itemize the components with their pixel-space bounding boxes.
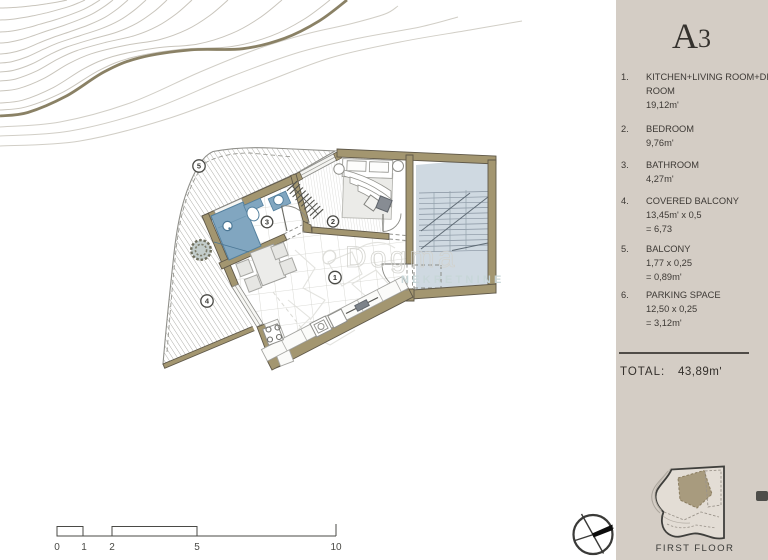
svg-text:43,89mʹ: 43,89mʹ [678, 366, 722, 378]
svg-text:BEDROOM: BEDROOM [646, 124, 694, 134]
svg-text:FIRST FLOOR: FIRST FLOOR [656, 543, 735, 554]
svg-text:BATHROOM: BATHROOM [646, 160, 699, 170]
svg-text:PARKING SPACE: PARKING SPACE [646, 290, 721, 300]
svg-text:4.: 4. [621, 196, 629, 206]
svg-text:0: 0 [54, 542, 60, 553]
svg-text:1: 1 [81, 542, 87, 553]
svg-text:2: 2 [109, 542, 115, 553]
svg-text:5: 5 [194, 542, 200, 553]
svg-text:13,45mʹ x 0,5: 13,45mʹ x 0,5 [646, 210, 702, 220]
svg-text:3.: 3. [621, 160, 629, 170]
svg-text:5: 5 [197, 162, 201, 171]
svg-text:9,76mʹ: 9,76mʹ [646, 138, 674, 148]
svg-text:ROOM: ROOM [646, 86, 675, 96]
svg-text:A: A [672, 16, 698, 56]
svg-text:2.: 2. [621, 124, 629, 134]
svg-text:10: 10 [330, 542, 342, 553]
svg-text:COVERED BALCONY: COVERED BALCONY [646, 196, 739, 206]
svg-text:= 0,89mʹ: = 0,89mʹ [646, 272, 682, 282]
svg-text:3: 3 [265, 218, 269, 227]
svg-text:= 6,73: = 6,73 [646, 224, 672, 234]
svg-text:1.: 1. [621, 72, 629, 82]
svg-text:12,50 x 0,25: 12,50 x 0,25 [646, 304, 697, 314]
svg-text:19,12mʹ: 19,12mʹ [646, 100, 679, 110]
svg-text:Dogma: Dogma [345, 241, 458, 274]
svg-text:1: 1 [333, 273, 337, 282]
svg-text:NEKRETNINE: NEKRETNINE [401, 274, 505, 286]
svg-text:3: 3 [698, 24, 711, 53]
svg-text:6.: 6. [621, 290, 629, 300]
svg-text:KITCHEN+LIVING ROOM+DINING: KITCHEN+LIVING ROOM+DINING [646, 72, 768, 82]
svg-text:1,77 x 0,25: 1,77 x 0,25 [646, 258, 692, 268]
svg-text:TOTAL:: TOTAL: [620, 366, 665, 378]
svg-text:4,27mʹ: 4,27mʹ [646, 174, 674, 184]
svg-text:5.: 5. [621, 244, 629, 254]
svg-text:= 3,12mʹ: = 3,12mʹ [646, 318, 682, 328]
svg-text:2: 2 [331, 217, 335, 226]
svg-text:BALCONY: BALCONY [646, 244, 690, 254]
